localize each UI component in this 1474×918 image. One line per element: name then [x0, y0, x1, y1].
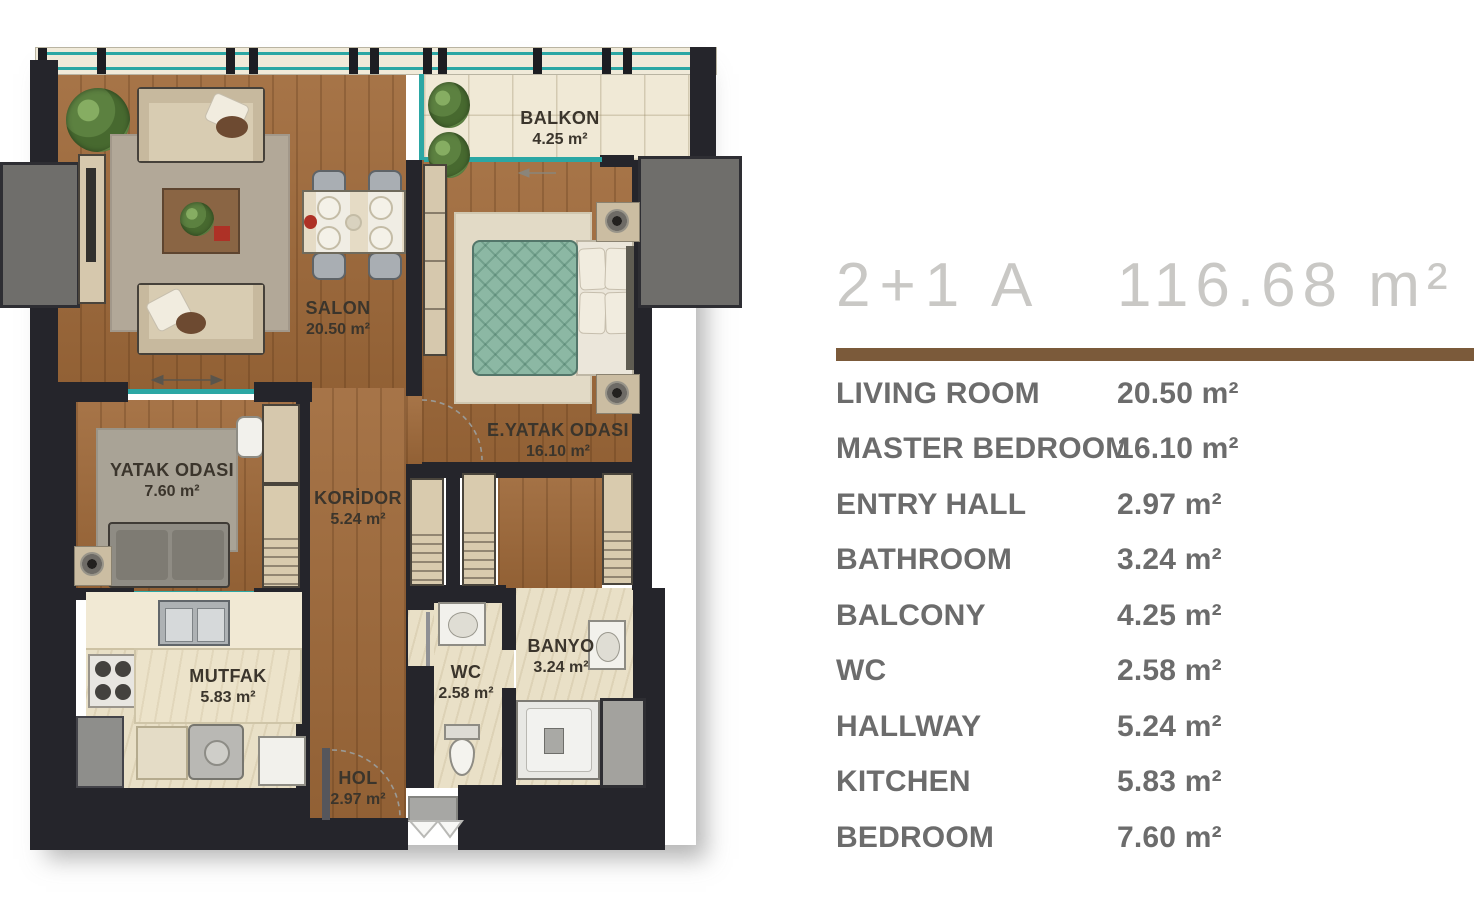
room-area: 5.24 m²: [288, 510, 428, 530]
room-name: SALON: [270, 298, 406, 320]
legend-room-area: 2.58 m²: [1117, 654, 1474, 688]
legend-room-area: 5.83 m²: [1117, 765, 1474, 799]
legend-divider: [836, 348, 1474, 361]
legend-panel: 2+1 A 116.68 m² LIVING ROOM 20.50 m² MAS…: [836, 252, 1474, 892]
room-label-kitchen: MUTFAK 5.83 m²: [150, 666, 306, 707]
room-name: WC: [408, 662, 524, 684]
room-name: E.YATAK ODASI: [462, 420, 654, 442]
plan-title: 2+1 A: [836, 252, 1041, 320]
room-area: 2.97 m²: [300, 790, 416, 810]
legend-room-label: LIVING ROOM: [836, 377, 1117, 411]
legend-room-area: 20.50 m²: [1117, 377, 1474, 411]
room-name: BALKON: [495, 108, 625, 130]
room-name: YATAK ODASI: [92, 460, 252, 482]
room-area: 7.60 m²: [92, 482, 252, 502]
legend-room-label: BALCONY: [836, 599, 1117, 633]
legend-room-area: 7.60 m²: [1117, 821, 1474, 855]
legend-row: WC 2.58 m²: [836, 644, 1474, 700]
room-area: 4.25 m²: [495, 130, 625, 150]
legend-row: HALLWAY 5.24 m²: [836, 699, 1474, 755]
balcony-door-arrow: [519, 169, 556, 177]
room-area: 5.83 m²: [150, 688, 306, 708]
legend-room-area: 16.10 m²: [1117, 432, 1474, 466]
legend-room-area: 2.97 m²: [1117, 488, 1474, 522]
legend-rows: LIVING ROOM 20.50 m² MASTER BEDROOM 16.1…: [836, 366, 1474, 866]
room-name: MUTFAK: [150, 666, 306, 688]
room-label-hallway: KORİDOR 5.24 m²: [288, 488, 428, 529]
room-label-living: SALON 20.50 m²: [270, 298, 406, 339]
legend-room-label: HALLWAY: [836, 710, 1117, 744]
room-area: 2.58 m²: [408, 684, 524, 704]
legend-room-area: 3.24 m²: [1117, 543, 1474, 577]
legend-room-area: 4.25 m²: [1117, 599, 1474, 633]
entry-swing-symbol: [410, 821, 462, 837]
legend-room-label: BEDROOM: [836, 821, 1117, 855]
room-label-bedroom: YATAK ODASI 7.60 m²: [92, 460, 252, 501]
legend-row: MASTER BEDROOM 16.10 m²: [836, 422, 1474, 478]
legend-row: LIVING ROOM 20.50 m²: [836, 366, 1474, 422]
room-name: HOL: [300, 768, 416, 790]
legend-room-label: BATHROOM: [836, 543, 1117, 577]
room-label-balcony: BALKON 4.25 m²: [495, 108, 625, 149]
floor-plan-page: BALKON 4.25 m² SALON 20.50 m² E.YATAK OD…: [0, 0, 1474, 918]
floor-plan: BALKON 4.25 m² SALON 20.50 m² E.YATAK OD…: [0, 0, 780, 918]
legend-row: KITCHEN 5.83 m²: [836, 755, 1474, 811]
legend-row: ENTRY HALL 2.97 m²: [836, 477, 1474, 533]
plan-total-area: 116.68 m²: [1117, 252, 1455, 320]
legend-row: BALCONY 4.25 m²: [836, 588, 1474, 644]
room-label-entry-hall: HOL 2.97 m²: [300, 768, 416, 809]
legend-row: BEDROOM 7.60 m²: [836, 810, 1474, 866]
room-label-wc: WC 2.58 m²: [408, 662, 524, 703]
legend-title-row: 2+1 A 116.68 m²: [836, 252, 1474, 322]
legend-room-label: KITCHEN: [836, 765, 1117, 799]
room-area: 20.50 m²: [270, 320, 406, 340]
legend-room-area: 5.24 m²: [1117, 710, 1474, 744]
legend-room-label: WC: [836, 654, 1117, 688]
legend-row: BATHROOM 3.24 m²: [836, 533, 1474, 589]
room-label-master: E.YATAK ODASI 16.10 m²: [462, 420, 654, 461]
room-name: BANYO: [502, 636, 620, 658]
legend-room-label: ENTRY HALL: [836, 488, 1117, 522]
room-name: KORİDOR: [288, 488, 428, 510]
slider-direction-arrows: [152, 376, 222, 385]
legend-room-label: MASTER BEDROOM: [836, 432, 1117, 466]
room-area: 16.10 m²: [462, 442, 654, 462]
